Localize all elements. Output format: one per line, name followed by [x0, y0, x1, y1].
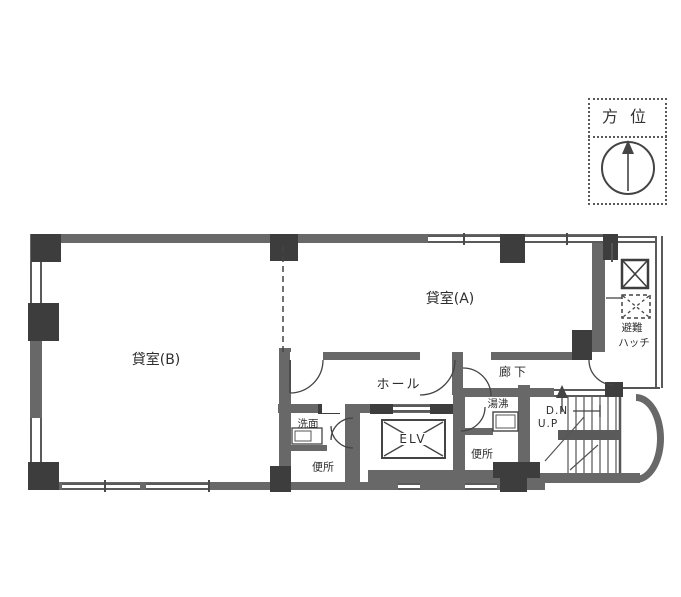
escape-hatch-label-line2: ハッチ	[618, 338, 650, 349]
stair-up-arrow-head	[556, 385, 568, 398]
escape-hatch-box	[622, 295, 650, 318]
floor-plan: 方位 貸室(B) 貸室(A) ホール 廊下 洗面 便所 便所 湯沸 ELV D.…	[0, 0, 681, 597]
door-arc-hall-left	[290, 360, 323, 393]
door-arc-water-heater	[461, 407, 485, 431]
room-a-label: 貸室(A)	[426, 292, 475, 306]
stairs-up-label: U.P	[538, 419, 558, 430]
sink-fixture-inner	[295, 431, 311, 441]
water-heater-label: 湯沸	[488, 399, 509, 410]
corridor-label: 廊下	[499, 366, 529, 378]
detail-lines	[0, 0, 681, 597]
washroom-label: 洗面	[298, 419, 319, 430]
door-arc-room-a-right	[463, 368, 491, 396]
stairs-down-label: D.N	[546, 406, 568, 417]
door-arc-room-a-left	[420, 360, 455, 395]
escape-hatch-x2	[623, 296, 649, 317]
escape-hatch-x1	[623, 296, 649, 317]
compass-label: 方位	[602, 109, 658, 125]
door-arc-balcony	[589, 360, 614, 385]
hall-label: ホール	[376, 379, 421, 392]
sink-fixture	[292, 428, 322, 444]
toilet-right-label: 便所	[471, 449, 493, 460]
escape-hatch-label-line1: 避難	[622, 323, 643, 334]
toilet-left-label: 便所	[312, 462, 334, 473]
compass-divider	[588, 136, 667, 138]
elevator-label: ELV	[397, 433, 428, 445]
room-b-label: 貸室(B)	[132, 353, 181, 367]
